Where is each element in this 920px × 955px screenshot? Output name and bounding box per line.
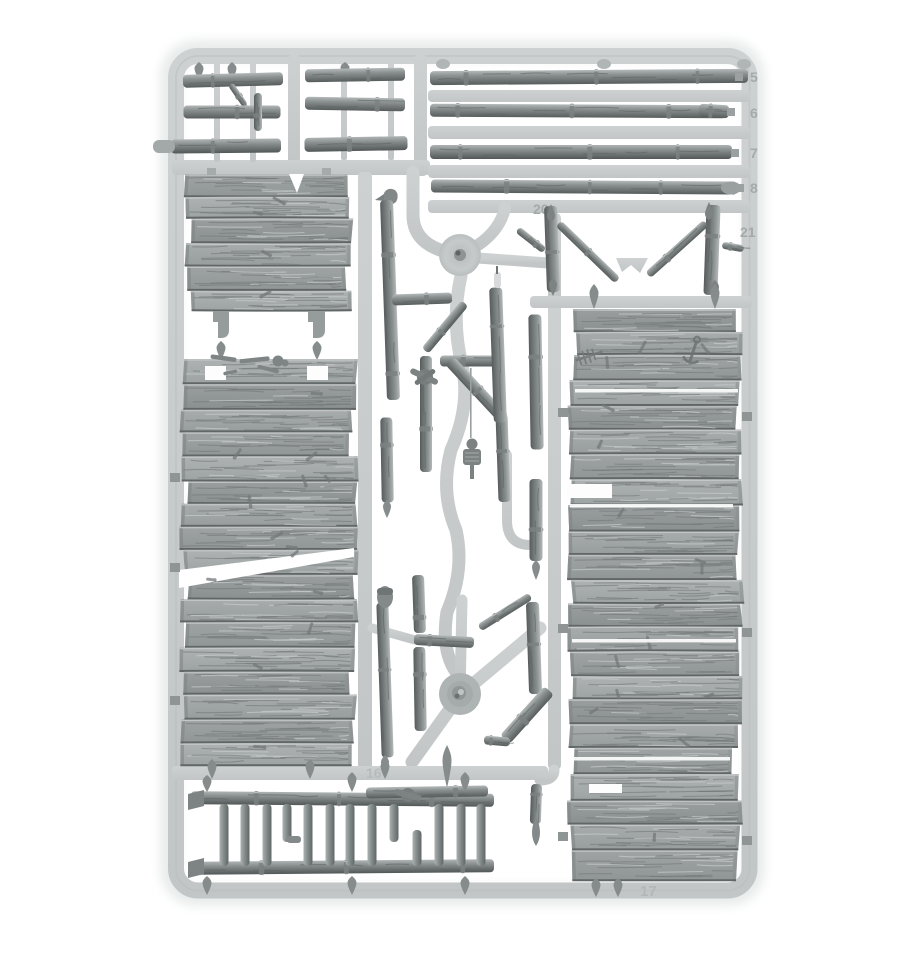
svg-text:8: 8: [750, 180, 758, 196]
svg-text:5: 5: [750, 69, 758, 85]
svg-text:17: 17: [640, 883, 657, 900]
svg-text:7: 7: [750, 145, 758, 161]
svg-text:6: 6: [750, 105, 758, 121]
svg-text:21: 21: [740, 224, 756, 240]
svg-text:16: 16: [366, 765, 382, 781]
